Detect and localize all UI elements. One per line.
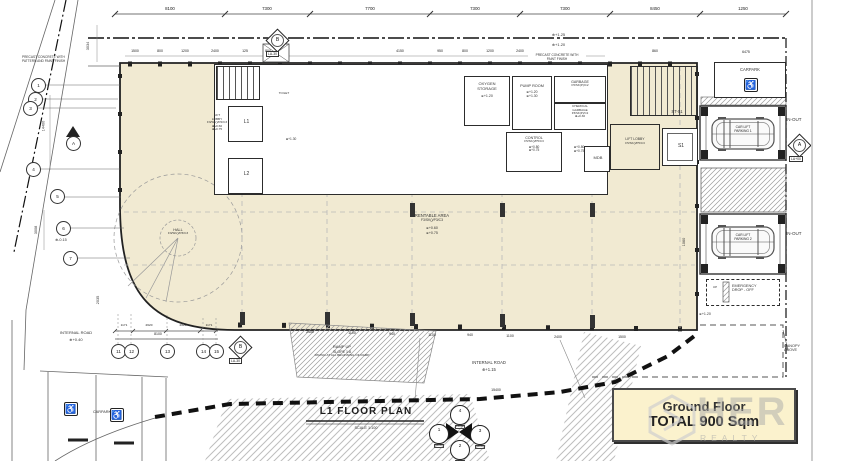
dim-small: 2400 — [510, 50, 530, 54]
keyplan-circle-top: 4LA-00 — [450, 405, 470, 425]
toilet-label: TOILET — [266, 92, 302, 95]
dim-small: 4150 — [390, 50, 410, 54]
internal-road-bottom: INTERNAL ROAD ⊕+1.15 — [458, 361, 520, 373]
car-icon — [712, 225, 774, 259]
dim-bottom-total: 15400 — [482, 389, 510, 393]
top-level-2: ⊕+1.20 — [552, 43, 582, 48]
precast-note-left: PRECAST CONCRETE WITHPATTERN AND PAINT F… — [22, 56, 84, 63]
dim-small: 1200 — [480, 50, 500, 54]
dim-top: 7700 — [356, 7, 384, 11]
watermark-text-sub: REALTY — [700, 433, 762, 443]
bay1-label: CAR LIFTPARKING 1 — [722, 126, 764, 134]
dim-bottom: 1100 — [499, 335, 521, 339]
bay2-inout: IN-OUT — [786, 231, 812, 236]
keyplan-circle-bottom: 2LA-00 — [450, 440, 470, 460]
grid-bubble-left: 5 — [50, 189, 65, 204]
oxygen-label: OXYGENSTORAGE ⊕+1.20 — [465, 82, 509, 99]
dim-bottom: 1500 — [611, 336, 633, 340]
watermark-text-main: HER — [697, 390, 787, 435]
dim-bottom: 2400 — [547, 336, 569, 340]
pump-label: PUMP ROOM ⊕+1.20 ⊕+1.30 — [513, 84, 551, 99]
dim-small: 1500 — [125, 50, 145, 54]
bay2-label: CAR LIFTPARKING 2 — [722, 234, 764, 242]
grid-bubble-left: 6 — [56, 221, 71, 236]
garbage-label: GARBAGE F5/SK(P)/C2 — [555, 80, 605, 88]
lift-s1: S1 — [662, 128, 698, 166]
carpark-right-label: CARPARK — [714, 68, 786, 73]
dim-left: 3034 — [86, 42, 90, 50]
dim-sub: 2620 — [175, 324, 191, 327]
dim-top: 1250 — [729, 7, 757, 11]
dim-bottom: 1100 — [421, 334, 443, 338]
internal-road-left: INTERNAL ROAD ⊕+0.40 — [52, 331, 100, 342]
lift-1: L1 — [228, 106, 263, 142]
dim-bottom: 1100 — [341, 332, 363, 336]
dim-left: 14400 — [41, 121, 45, 132]
grid-bubble-bottom: 12 — [124, 344, 139, 359]
grid-bubble-bottom: 13 — [160, 344, 175, 359]
lift-lobby-left-label: LIFT LOBBY F3/SK()/P2/C3 ⊕+0.60 ⊕+0.75 — [204, 114, 230, 132]
plan-title: L1 FLOOR PLAN — [306, 406, 426, 417]
grid-bubble-left: 3 — [23, 101, 38, 116]
dim-bottom: 2400 — [299, 331, 321, 335]
car-icon — [712, 117, 774, 151]
grid-bubble-bottom: 15 — [209, 344, 224, 359]
keyplan-circle-left: 1LA-00 — [429, 424, 449, 444]
accessible-icon: ♿ — [64, 402, 78, 416]
dim-right: 1060 — [682, 238, 686, 246]
floor-plan-sheet: L1 L2 MDB ST-01 S1 LIFT LOBBY F3/SK()/P2… — [0, 0, 854, 461]
grid-marker-b-bottom-tag: LA-30 — [229, 358, 242, 364]
top-level-1: ⊕+1.25 — [552, 33, 582, 38]
dim-right: 6475 — [734, 51, 758, 55]
dim-small: 2400 — [205, 50, 225, 54]
dim-left: 2035 — [96, 296, 100, 304]
dim-top: 8450 — [641, 7, 669, 11]
grid-bubble-left: 4 — [26, 162, 41, 177]
grid-bubble-left: 7 — [63, 251, 78, 266]
lift-lobby-right-label: LIFT LOBBY F5/SK()/P5/C3 — [611, 138, 659, 145]
left-level: ⊕-0.15 — [46, 238, 76, 243]
control-label: CONTROL F5/SK()/P5/C3 ⊕+0.80 ⊕+0.75 — [507, 136, 561, 153]
lift-s1-label: S1 — [663, 144, 699, 150]
accessible-icon: ♿ — [744, 78, 758, 92]
lift-2-label: L2 — [229, 172, 264, 178]
rentable-area-label: RENTABLE AREA F3/SK()/P3/C3 ⊕+0.60 ⊕+0.7… — [400, 214, 464, 236]
lift-1-label: L1 — [229, 120, 264, 126]
toilet-level: ⊕+1.30 — [276, 138, 306, 142]
dim-small: 800 — [150, 50, 170, 54]
stair-st01 — [630, 66, 698, 116]
dim-sub: 1171 — [201, 324, 217, 327]
mdb-label: MDB — [585, 156, 611, 161]
section-marker-a: A — [66, 136, 81, 151]
stair-small — [216, 66, 260, 100]
dim-small: 1200 — [175, 50, 195, 54]
car-lift-bay-2 — [700, 214, 786, 274]
dim-sub-total: 8100 — [148, 333, 168, 337]
plan-title-scale: SCALE 1:100 — [336, 426, 396, 430]
accessible-icon: ♿ — [110, 408, 124, 422]
sheet-edge-line — [811, 0, 813, 461]
stair-st01-label: ST-01 — [660, 110, 694, 115]
dim-bottom: 940 — [381, 333, 403, 337]
keyplan-circle-right: 3LA-00 — [470, 425, 490, 445]
dim-bottom: 940 — [459, 334, 481, 338]
grid-marker-b-top-tag: LA-30 — [266, 51, 279, 57]
dim-small: 125 — [235, 50, 255, 54]
dim-small: 860 — [645, 50, 665, 54]
canopy-note: CANOPYABOVE — [784, 344, 810, 353]
bay1-inout: IN-OUT — [786, 117, 812, 122]
dim-left: 3008 — [34, 226, 38, 234]
dim-top: 7300 — [253, 7, 281, 11]
lift-lobby-right — [610, 124, 660, 170]
dim-top: 7300 — [551, 7, 579, 11]
dim-top: 8100 — [156, 7, 184, 11]
dim-sub: 2620 — [141, 324, 157, 327]
grid-bubble-left: 1 — [31, 78, 46, 93]
chemical-garbage-label: CHEMICALGARBAGE F5/SK(P)/C2 ⊕+0.30 — [555, 105, 605, 119]
lift-2: L2 — [228, 158, 263, 194]
emergency-level: ⊕+1.20 — [690, 312, 720, 317]
dim-sub: 1171 — [116, 324, 132, 327]
dim-small: 800 — [455, 50, 475, 54]
precast-note-top: PRECAST CONCRETE WITHPAINT FINISH — [528, 54, 586, 61]
ramp-label: RAMP UP SLOPE 1:8 PAVING AT ALL BEGINNIN… — [300, 345, 384, 357]
emergency-label: EMERGENCYDROP - OFF — [732, 284, 778, 293]
grid-marker-a-right-tag: LA+00 — [789, 156, 803, 162]
control-levels-2: ⊕+0.80 ⊕+0.75 — [564, 146, 594, 153]
dim-small: 950 — [430, 50, 450, 54]
hall-label: HALL F3/SK()/P3/C3 — [148, 228, 208, 236]
dim-top: 7300 — [461, 7, 489, 11]
emergency-up-label: UP — [708, 286, 722, 289]
